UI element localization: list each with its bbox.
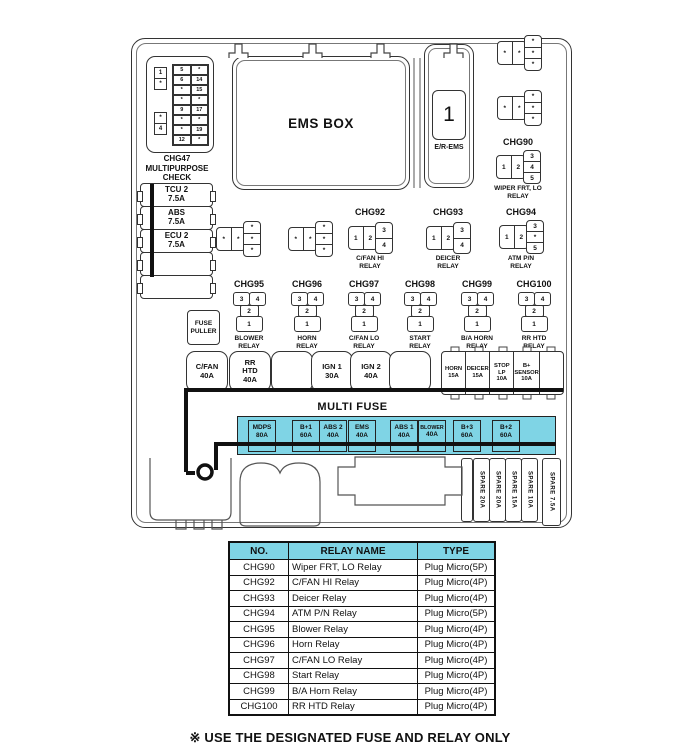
connector-pin-grid: 5 * 6 14 * 15 * * 9 17 * * * 19 12 *	[172, 64, 209, 146]
pin-cell: 4	[524, 162, 540, 173]
pin-cell: 3	[404, 292, 421, 306]
pin-cell: 3	[461, 292, 478, 306]
relay-chg100-group: CHG100 34 2 1 RR HTDRELAY	[505, 279, 563, 351]
pin-cell: *	[173, 125, 191, 135]
pin-cell: *	[525, 48, 541, 60]
pin-cell: *	[525, 59, 541, 70]
pin-cell: 4	[376, 239, 392, 254]
ems-box-label: EMS BOX	[233, 57, 409, 189]
pin-cell: 12	[173, 135, 191, 145]
ems-box: EMS BOX	[232, 56, 410, 190]
multifuse-blower: BLOWER40A	[418, 420, 446, 452]
multifuse-mdps: MDPS80A	[248, 420, 276, 452]
relay-unlabeled: ** ***	[288, 221, 332, 255]
fuse-cfan-40a: C/FAN40A	[186, 351, 228, 392]
table-row: CHG95Blower RelayPlug Micro(4P)	[229, 622, 495, 638]
table-row: CHG94ATM P/N RelayPlug Micro(5P)	[229, 606, 495, 622]
pin-cell: 14	[191, 75, 209, 85]
pin-cell: *	[316, 222, 332, 234]
relay-id: CHG98	[405, 279, 435, 290]
small-fuse-block: HORN15A DEICER15A STOPLP10A B+SENSOR10A	[441, 351, 564, 395]
pin-cell: *	[173, 85, 191, 95]
fuse-slot-empty	[271, 351, 313, 392]
multifuse-b3: B+360A	[453, 420, 481, 452]
table-row: CHG90Wiper FRT, LO RelayPlug Micro(5P)	[229, 560, 495, 576]
pin-cell: 1	[236, 316, 263, 332]
pin-cell: *	[525, 114, 541, 125]
pin-cell: 1	[351, 316, 378, 332]
pin-cell: *	[244, 234, 260, 246]
spare-fuse-10a: SPARE 10A	[521, 458, 538, 522]
pin-cell: 4	[307, 292, 324, 306]
pin-cell: 3	[454, 223, 470, 239]
relay-id: CHG95	[234, 279, 264, 290]
pin-cell: 4	[154, 123, 167, 135]
relay-name: DEICERRELAY	[436, 255, 461, 271]
fusebox-diagram: 1 * * 4 5 * 6 14 * 15 * * 9 17 * * * 19 …	[0, 0, 700, 751]
pin-cell: *	[173, 95, 191, 105]
relay-id: CHG99	[462, 279, 492, 290]
pin-cell: 15	[191, 85, 209, 95]
pin-cell: 3	[233, 292, 250, 306]
relay-id: CHG94	[506, 207, 536, 218]
multi-fuse-title: MULTI FUSE	[280, 401, 425, 413]
pin-cell: *	[173, 115, 191, 125]
pin-cell: *	[191, 65, 209, 75]
fuse-deicer-15a: DEICER15A	[466, 352, 490, 394]
fuse-rrhtd-40a: RRHTD40A	[229, 351, 271, 392]
er-ems-label: E/R-EMS	[420, 144, 478, 151]
relay-chg92-group: CHG92 12 34 C/FAN HIRELAY	[338, 207, 402, 271]
spare-fuse-15a: SPARE 15A	[505, 458, 522, 522]
pin-cell: 1	[349, 227, 364, 249]
relay-unlabeled: ** ***	[216, 221, 260, 255]
pin-cell: 1	[521, 316, 548, 332]
spare-fuse-7.5a: SPARE 7.5A	[542, 458, 561, 526]
pin-cell: *	[244, 245, 260, 256]
relay-chg93-group: CHG93 12 34 DEICERRELAY	[416, 207, 480, 271]
pin-cell: 4	[454, 239, 470, 254]
pin-cell: 9	[173, 105, 191, 115]
pin-cell: *	[498, 42, 513, 64]
col-type: TYPE	[418, 542, 496, 560]
relay-name: C/FAN HIRELAY	[356, 255, 384, 271]
relay-id: CHG97	[349, 279, 379, 290]
fuse-ign1-30a: IGN 130A	[311, 351, 353, 392]
pin-cell: 5	[173, 65, 191, 75]
pin-cell: *	[316, 234, 332, 246]
multifuse-b2: B+260A	[492, 420, 520, 452]
pin-cell: 3	[291, 292, 308, 306]
pin-cell: 3	[527, 221, 543, 232]
pin-cell: 1	[427, 227, 442, 249]
relay-name: BLOWERRELAY	[235, 335, 264, 351]
fuse-ecu2: ECU 27.5A	[140, 229, 213, 253]
pin-cell: 1	[500, 226, 515, 248]
relay-chg96-group: CHG96 34 2 1 HORNRELAY	[278, 279, 336, 351]
table-row: CHG92C/FAN HI RelayPlug Micro(4P)	[229, 575, 495, 591]
relay-chg95-group: CHG95 34 2 1 BLOWERRELAY	[220, 279, 278, 351]
pin-cell: *	[527, 232, 543, 243]
pin-cell: *	[191, 135, 209, 145]
pin-cell: 3	[518, 292, 535, 306]
pin-cell: *	[525, 103, 541, 115]
pin-cell: *	[316, 245, 332, 256]
relay-name: STARTRELAY	[409, 335, 430, 351]
pin-cell: 1	[294, 316, 321, 332]
pin-cell: *	[244, 222, 260, 234]
pin-cell: *	[289, 228, 304, 250]
pin-cell: 4	[534, 292, 551, 306]
pin-cell: 17	[191, 105, 209, 115]
pin-cell: 3	[348, 292, 365, 306]
relay-chg97-group: CHG97 34 2 1 C/FAN LORELAY	[335, 279, 393, 351]
connector-side-pins: 1 * * 4	[154, 67, 167, 134]
table-row: CHG99B/A Horn RelayPlug Micro(4P)	[229, 684, 495, 700]
fuse-slot-empty	[540, 352, 563, 394]
relay-unlabeled: ** ***	[497, 35, 541, 69]
col-no: NO.	[229, 542, 289, 560]
relay-name: RR HTDRELAY	[522, 335, 547, 351]
multifuse-abs1: ABS 140A	[390, 420, 418, 452]
table-header-row: NO. RELAY NAME TYPE	[229, 542, 495, 560]
pin-cell: 4	[364, 292, 381, 306]
fuse-puller-box: FUSEPULLER	[187, 310, 220, 345]
relay-id: CHG92	[355, 207, 385, 218]
pin-cell: *	[191, 95, 209, 105]
fuse-abs: ABS7.5A	[140, 206, 213, 230]
relay-id: CHG96	[292, 279, 322, 290]
table-row: CHG98Start RelayPlug Micro(4P)	[229, 668, 495, 684]
fuse-horn-15a: HORN15A	[442, 352, 466, 394]
relay-id: CHG90	[503, 137, 533, 148]
pin-cell: 5	[524, 173, 540, 183]
pin-cell: 6	[173, 75, 191, 85]
fuse-slot-empty	[140, 275, 213, 299]
spare-slot-empty	[461, 458, 473, 522]
spare-fuse-20a: SPARE 20A	[489, 458, 506, 522]
relay-name: B/A HORNRELAY	[461, 335, 493, 351]
pin-cell: *	[498, 97, 513, 119]
multifuse-b1: B+160A	[292, 420, 320, 452]
relay-chg98-group: CHG98 34 2 1 STARTRELAY	[391, 279, 449, 351]
multifuse-ems: EMS40A	[348, 420, 376, 452]
pin-cell: *	[217, 228, 232, 250]
table-row: CHG100RR HTD RelayPlug Micro(4P)	[229, 699, 495, 715]
pin-cell: 1	[407, 316, 434, 332]
pin-cell: 4	[249, 292, 266, 306]
multifuse-abs2: ABS 240A	[319, 420, 347, 452]
relay-id: CHG100	[516, 279, 551, 290]
relay-chg99-group: CHG99 34 2 1 B/A HORNRELAY	[448, 279, 506, 351]
fuse-bsensor-10a: B+SENSOR10A	[514, 352, 539, 394]
fuse-tcu2: TCU 27.5A	[140, 183, 213, 207]
multi-fuse-strip: MDPS80A B+160A ABS 240A EMS40A ABS 140A …	[237, 416, 556, 455]
pin-cell: 4	[420, 292, 437, 306]
pin-cell: 1	[464, 316, 491, 332]
fuse-slot-empty	[389, 351, 431, 392]
table-row: CHG96Horn RelayPlug Micro(4P)	[229, 637, 495, 653]
table-row: CHG93Deicer RelayPlug Micro(4P)	[229, 591, 495, 607]
pin-cell: 3	[376, 223, 392, 239]
fuse-stoplp-10a: STOPLP10A	[490, 352, 514, 394]
table-row: CHG97C/FAN LO RelayPlug Micro(4P)	[229, 653, 495, 669]
er-ems-slot: 1	[432, 90, 466, 140]
relay-id: CHG93	[433, 207, 463, 218]
col-relay-name: RELAY NAME	[289, 542, 418, 560]
spare-fuse-20a: SPARE 20A	[473, 458, 490, 522]
pin-cell: *	[525, 36, 541, 48]
pin-cell: 1	[497, 156, 512, 178]
pin-cell: 19	[191, 125, 209, 135]
relay-chg94-group: CHG94 12 3*5 ATM P/NRELAY	[489, 207, 553, 271]
usage-note: ※ USE THE DESIGNATED FUSE AND RELAY ONLY	[0, 730, 700, 746]
chg47-connector-drawing: 1 * * 4 5 * 6 14 * 15 * * 9 17 * * * 19 …	[146, 56, 214, 153]
pin-cell: 4	[477, 292, 494, 306]
pin-cell: *	[191, 115, 209, 125]
fuse-slot-empty	[140, 252, 213, 276]
pin-cell: *	[525, 91, 541, 103]
relay-chg90-group: CHG90 12 345 WIPER FRT, LORELAY	[486, 137, 550, 201]
relay-unlabeled: ** ***	[497, 90, 541, 124]
relay-name: WIPER FRT, LORELAY	[494, 185, 542, 201]
relay-name: HORNRELAY	[296, 335, 317, 351]
fuse-ign2-40a: IGN 240A	[350, 351, 392, 392]
pin-cell: 3	[524, 151, 540, 162]
pin-cell: 5	[527, 243, 543, 253]
relay-name: C/FAN LORELAY	[349, 335, 379, 351]
relay-table: NO. RELAY NAME TYPE CHG90Wiper FRT, LO R…	[228, 541, 496, 716]
relay-name: ATM P/NRELAY	[508, 255, 534, 271]
